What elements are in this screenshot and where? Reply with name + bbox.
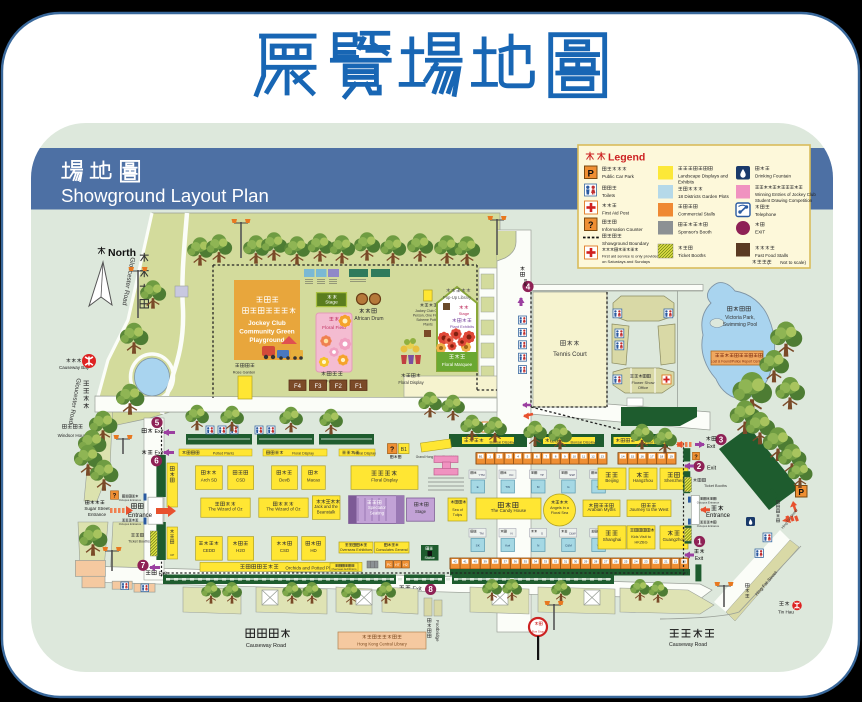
svg-text:2: 2	[697, 462, 702, 471]
svg-text:39: 39	[483, 560, 487, 564]
svg-text:on Saturdays and Sundays: on Saturdays and Sundays	[602, 259, 650, 264]
svg-text:Sugar Street: Sugar Street	[84, 506, 110, 511]
svg-text:Causeway Road: Causeway Road	[246, 643, 286, 649]
svg-text:Overseas Exhibitors: Overseas Exhibitors	[340, 548, 372, 552]
svg-text:Plants: Plants	[423, 323, 433, 327]
svg-text:29: 29	[584, 560, 588, 564]
svg-text:Jockey Club: Jockey Club	[248, 320, 286, 327]
svg-text:Spectator: Spectator	[368, 505, 387, 510]
svg-text:Ticket Booths: Ticket Booths	[678, 253, 706, 258]
svg-text:Exit: Exit	[707, 466, 717, 472]
svg-text:Kwl: Kwl	[505, 543, 510, 547]
svg-text:Fast Food Stalls: Fast Food Stalls	[755, 253, 789, 258]
svg-text:Hong Kong Central Library: Hong Kong Central Library	[357, 642, 407, 647]
svg-text:Rose Garden: Rose Garden	[233, 371, 256, 375]
svg-text:35: 35	[524, 560, 528, 564]
svg-text:11: 11	[582, 454, 585, 458]
svg-text:28: 28	[594, 560, 598, 564]
svg-text:S: S	[541, 532, 543, 536]
svg-text:Exit: Exit	[707, 444, 716, 450]
svg-text:F4: F4	[294, 384, 302, 390]
svg-text:Information Counter: Information Counter	[602, 227, 643, 232]
svg-text:6: 6	[154, 457, 159, 466]
svg-text:19: 19	[669, 454, 673, 458]
svg-text:Is: Is	[567, 485, 570, 489]
svg-text:Shenzhen: Shenzhen	[664, 478, 684, 483]
svg-text:Octopus Entrance: Octopus Entrance	[119, 498, 142, 502]
svg-text:Entrance: Entrance	[88, 512, 107, 517]
svg-text:8: 8	[428, 585, 433, 594]
svg-text:Potted Plants: Potted Plants	[213, 452, 235, 456]
svg-text:?: ?	[390, 447, 394, 454]
svg-text:TP: TP	[540, 473, 544, 477]
svg-text:Exit: Exit	[155, 429, 164, 435]
svg-text:Journey to the West: Journey to the West	[630, 507, 670, 512]
svg-text:Octopus Entrance: Octopus Entrance	[697, 524, 720, 528]
svg-text:KC: KC	[509, 473, 513, 477]
svg-text:SSP: SSP	[569, 473, 575, 477]
svg-text:F2: F2	[335, 384, 343, 390]
svg-text:Tennis Court: Tennis Court	[553, 352, 587, 358]
svg-text:Showground Layout Plan: Showground Layout Plan	[61, 185, 269, 206]
svg-text:EXIT: EXIT	[755, 230, 765, 235]
svg-text:Toilets: Toilets	[602, 193, 616, 198]
svg-text:Bonsai Display: Bonsai Display	[570, 441, 595, 445]
svg-text:15: 15	[631, 454, 635, 458]
svg-text:P: P	[798, 487, 804, 497]
svg-text:YTM: YTM	[478, 473, 485, 477]
svg-text:37: 37	[504, 560, 508, 564]
svg-text:Exit: Exit	[155, 451, 164, 457]
svg-text:30: 30	[574, 560, 578, 564]
svg-text:The Candy House: The Candy House	[491, 508, 527, 513]
svg-text:22: 22	[654, 560, 658, 564]
svg-text:Drinking Fountain: Drinking Fountain	[755, 174, 791, 179]
svg-text:Beijing: Beijing	[605, 478, 619, 483]
svg-text:Stage: Stage	[325, 300, 338, 306]
svg-text:Entrance: Entrance	[706, 513, 731, 519]
svg-text:31: 31	[564, 560, 568, 564]
svg-text:17: 17	[650, 454, 654, 458]
svg-text:21: 21	[674, 560, 678, 564]
svg-text:40: 40	[473, 560, 477, 564]
svg-text:Arabian Myths: Arabian Myths	[587, 507, 616, 512]
svg-text:32: 32	[554, 560, 558, 564]
svg-text:Angels in a: Angels in a	[550, 506, 570, 510]
svg-text:13: 13	[601, 454, 605, 458]
svg-text:F3: F3	[314, 384, 322, 390]
svg-text:CEDD: CEDD	[203, 548, 215, 553]
svg-text:African Drum: African Drum	[354, 316, 383, 322]
svg-text:3: 3	[719, 435, 724, 444]
svg-text:Victoria Park,: Victoria Park,	[725, 315, 755, 321]
svg-text:Legend: Legend	[608, 152, 645, 164]
svg-text:Community Green: Community Green	[239, 329, 294, 336]
svg-text:25: 25	[624, 560, 628, 564]
svg-text:42: 42	[453, 560, 457, 564]
svg-text:34: 34	[534, 560, 538, 564]
svg-text:HD: HD	[310, 548, 316, 553]
svg-text:Shanghai: Shanghai	[603, 537, 622, 542]
svg-text:P: P	[588, 169, 595, 180]
svg-text:Lost & Found/Police Report Cen: Lost & Found/Police Report Centre	[711, 360, 764, 364]
svg-text:14: 14	[621, 454, 625, 458]
svg-text:E: E	[477, 485, 479, 489]
svg-text:Seating: Seating	[370, 511, 385, 516]
svg-text:B1: B1	[479, 454, 483, 458]
svg-text:24: 24	[634, 560, 638, 564]
svg-text:Student Drawing Competition: Student Drawing Competition	[755, 198, 813, 203]
svg-text:1: 1	[697, 537, 702, 546]
svg-text:Overseas Exhibitors: Overseas Exhibitors	[331, 567, 357, 571]
svg-text:H2: H2	[403, 563, 407, 567]
svg-text:Floral Display: Floral Display	[371, 477, 398, 482]
svg-text:CP: CP	[170, 553, 174, 557]
svg-text:Sponsor's Booth: Sponsor's Booth	[678, 230, 712, 235]
svg-text:Tin Hau: Tin Hau	[778, 610, 794, 615]
svg-text:Public Car Park: Public Car Park	[602, 174, 635, 179]
svg-text:HT: HT	[395, 563, 400, 567]
svg-text:Macao: Macao	[307, 477, 321, 482]
svg-text:Entrance: Entrance	[128, 513, 153, 519]
svg-text:7: 7	[141, 561, 146, 570]
svg-text:N: N	[537, 543, 539, 547]
svg-text:10: 10	[573, 454, 577, 458]
svg-text:PC: PC	[387, 563, 392, 567]
svg-text:C&W: C&W	[569, 532, 576, 536]
svg-text:Swimming Pool: Swimming Pool	[723, 322, 757, 328]
svg-text:TM: TM	[479, 532, 484, 536]
svg-text:12: 12	[591, 454, 595, 458]
svg-text:Winning Entries of Jockey Club: Winning Entries of Jockey Club	[755, 192, 816, 197]
svg-text:Landscape Displays and: Landscape Displays and	[678, 174, 728, 179]
svg-text:Exit: Exit	[523, 279, 528, 287]
svg-text:CSD: CSD	[236, 477, 245, 482]
svg-text:Causeway Road: Causeway Road	[669, 642, 707, 648]
svg-text:F1: F1	[355, 384, 363, 390]
svg-text:18 Districts Garden Plots: 18 Districts Garden Plots	[678, 194, 730, 199]
svg-text:Exhibits: Exhibits	[678, 180, 695, 185]
svg-text:?: ?	[588, 220, 594, 230]
svg-text:Floral Sea: Floral Sea	[551, 511, 569, 515]
svg-text:18: 18	[660, 454, 664, 458]
svg-text:Ticket Booths: Ticket Booths	[704, 484, 727, 488]
svg-text:36: 36	[514, 560, 518, 564]
svg-text:Floral Marquee: Floral Marquee	[442, 362, 473, 367]
svg-text:21: 21	[664, 560, 668, 564]
svg-text:( Not to scale): ( Not to scale)	[767, 260, 806, 265]
svg-text:Statue: Statue	[425, 556, 435, 560]
svg-text:Telephone: Telephone	[755, 212, 777, 217]
svg-text:The Wizard of Oz: The Wizard of Oz	[266, 507, 300, 512]
svg-text:Exit: Exit	[695, 556, 704, 562]
svg-text:B1: B1	[401, 447, 407, 453]
svg-text:N: N	[510, 532, 512, 536]
svg-text:HKZBG: HKZBG	[634, 541, 647, 545]
svg-text:M: M	[537, 485, 540, 489]
svg-text:Pop-Up Library: Pop-Up Library	[443, 295, 472, 300]
svg-text:27: 27	[604, 560, 608, 564]
svg-text:C&M: C&M	[565, 543, 572, 547]
svg-text:Footbridge: Footbridge	[435, 620, 440, 642]
svg-text:?: ?	[113, 494, 117, 500]
svg-text:26: 26	[614, 560, 618, 564]
svg-text:Stage: Stage	[415, 509, 427, 514]
svg-text:38: 38	[494, 560, 498, 564]
svg-text:Guangzhou: Guangzhou	[663, 537, 686, 542]
svg-text:Floral Display: Floral Display	[292, 452, 314, 456]
svg-text:Stage: Stage	[459, 311, 470, 316]
svg-text:Office: Office	[638, 385, 649, 390]
svg-text:Tulips: Tulips	[453, 513, 463, 517]
svg-text:Octopus Entrance: Octopus Entrance	[697, 501, 720, 505]
svg-text:Consulates General: Consulates General	[376, 548, 408, 552]
svg-text:Bonsai Display: Bonsai Display	[489, 441, 514, 445]
svg-text:Bus Stop: Bus Stop	[532, 630, 545, 634]
svg-text:5: 5	[155, 418, 160, 427]
svg-text:16: 16	[640, 454, 644, 458]
svg-text:H2O: H2O	[236, 548, 246, 553]
svg-text:DevB: DevB	[279, 477, 290, 482]
svg-text:Floral Display: Floral Display	[398, 380, 424, 385]
svg-text:Beanstalk: Beanstalk	[317, 510, 336, 515]
svg-text:41: 41	[463, 560, 467, 564]
svg-text:CSD: CSD	[280, 548, 289, 553]
svg-text:Kids Visit to: Kids Visit to	[631, 535, 651, 539]
svg-text:23: 23	[644, 560, 648, 564]
svg-text:Hangzhou: Hangzhou	[633, 478, 654, 483]
svg-text:First Aid Post: First Aid Post	[602, 211, 630, 216]
svg-text:TW: TW	[505, 485, 510, 489]
svg-text:Jack and the: Jack and the	[314, 504, 338, 509]
svg-text:Playground: Playground	[249, 337, 284, 344]
svg-text:Showground Boundary: Showground Boundary	[602, 241, 649, 246]
svg-text:Sea of: Sea of	[452, 508, 462, 512]
svg-text:First aid service is only prov: First aid service is only provided	[602, 254, 659, 259]
svg-text:Commercial Stalls: Commercial Stalls	[678, 212, 716, 217]
svg-text:Ticket Booths: Ticket Booths	[128, 540, 150, 544]
svg-text:Octopus Entrance: Octopus Entrance	[119, 522, 142, 526]
svg-text:Plant Exhibits: Plant Exhibits	[450, 324, 474, 329]
svg-text:The Wizard of Oz: The Wizard of Oz	[208, 507, 242, 512]
svg-text:Arch SD: Arch SD	[201, 477, 217, 482]
svg-text:33: 33	[544, 560, 548, 564]
